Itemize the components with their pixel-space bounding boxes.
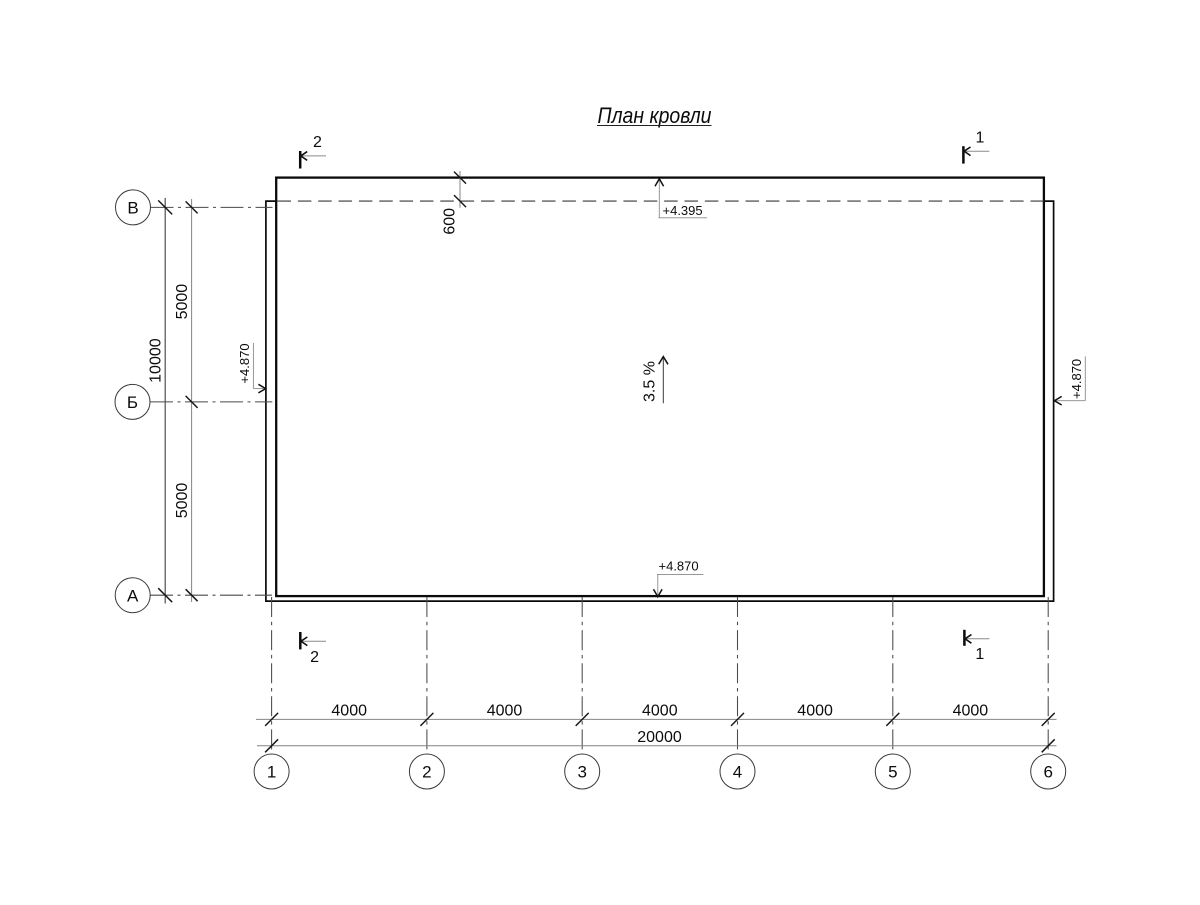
svg-text:В: В — [127, 199, 138, 218]
svg-text:10000: 10000 — [147, 338, 164, 383]
svg-text:4000: 4000 — [331, 702, 367, 719]
svg-text:+4.870: +4.870 — [659, 559, 699, 574]
svg-text:600: 600 — [442, 208, 459, 235]
svg-text:20000: 20000 — [637, 729, 682, 746]
svg-text:5000: 5000 — [174, 483, 191, 519]
svg-text:4000: 4000 — [953, 702, 989, 719]
svg-text:3: 3 — [577, 763, 586, 782]
svg-text:1: 1 — [267, 763, 276, 782]
svg-text:4000: 4000 — [487, 702, 523, 719]
svg-text:2: 2 — [422, 763, 431, 782]
svg-text:4000: 4000 — [797, 702, 833, 719]
svg-text:+4.395: +4.395 — [663, 203, 703, 218]
svg-text:1: 1 — [976, 129, 985, 146]
svg-text:3.5 %: 3.5 % — [642, 361, 659, 402]
svg-text:А: А — [127, 586, 139, 605]
svg-text:5000: 5000 — [174, 284, 191, 320]
svg-text:+4.870: +4.870 — [237, 343, 252, 383]
svg-text:4000: 4000 — [642, 702, 678, 719]
svg-text:5: 5 — [888, 763, 897, 782]
svg-text:4: 4 — [733, 763, 742, 782]
svg-text:2: 2 — [313, 134, 322, 151]
svg-text:План кровли: План кровли — [598, 103, 712, 128]
svg-text:Б: Б — [127, 393, 138, 412]
svg-text:+4.870: +4.870 — [1069, 359, 1084, 399]
svg-text:2: 2 — [310, 649, 319, 666]
svg-text:1: 1 — [975, 646, 984, 663]
svg-text:6: 6 — [1043, 763, 1052, 782]
